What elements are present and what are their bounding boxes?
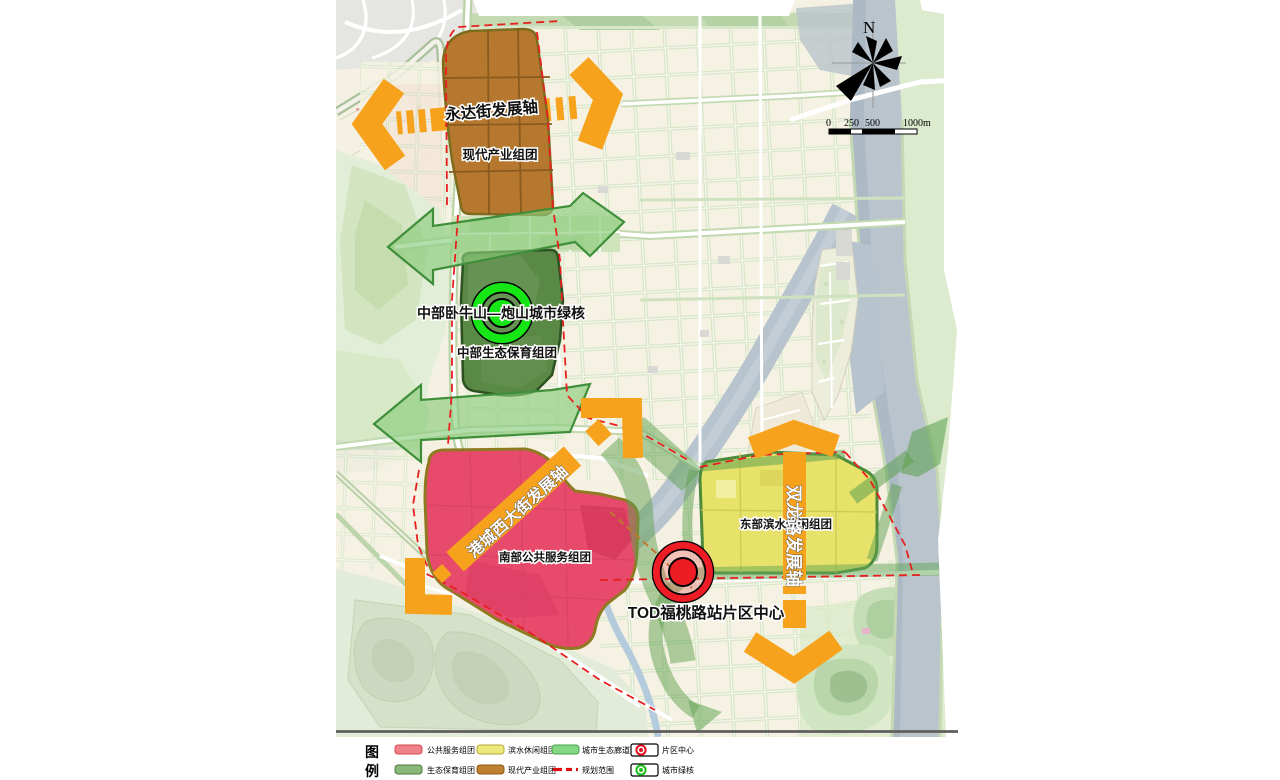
svg-text:公共服务组团: 公共服务组团 — [427, 745, 475, 755]
svg-text:例: 例 — [365, 763, 379, 779]
svg-text:中部卧牛山—炮山城市绿核: 中部卧牛山—炮山城市绿核 — [417, 305, 585, 321]
svg-text:城市生态廊道: 城市生态廊道 — [582, 745, 630, 755]
svg-text:南部公共服务组团: 南部公共服务组团 — [499, 550, 591, 564]
svg-text:现代产业组团: 现代产业组团 — [462, 147, 537, 162]
svg-text:中部生态保育组团: 中部生态保育组团 — [457, 345, 557, 360]
svg-text:现代产业组团: 现代产业组团 — [508, 765, 556, 775]
svg-text:1000m: 1000m — [903, 118, 931, 129]
svg-text:500: 500 — [865, 118, 880, 129]
svg-text:城市绿核: 城市绿核 — [662, 765, 694, 775]
svg-text:片区中心: 片区中心 — [662, 745, 694, 755]
svg-text:双龙路发展轴: 双龙路发展轴 — [784, 485, 804, 587]
svg-text:250: 250 — [844, 118, 859, 129]
svg-text:滨水休闲组团: 滨水休闲组团 — [508, 745, 556, 755]
svg-text:规划范围: 规划范围 — [582, 765, 614, 775]
svg-text:TOD福桃路站片区中心: TOD福桃路站片区中心 — [628, 603, 785, 622]
svg-text:0: 0 — [826, 118, 831, 129]
svg-text:图: 图 — [365, 744, 379, 760]
svg-text:N: N — [863, 18, 875, 37]
svg-text:生态保育组团: 生态保育组团 — [427, 765, 475, 775]
